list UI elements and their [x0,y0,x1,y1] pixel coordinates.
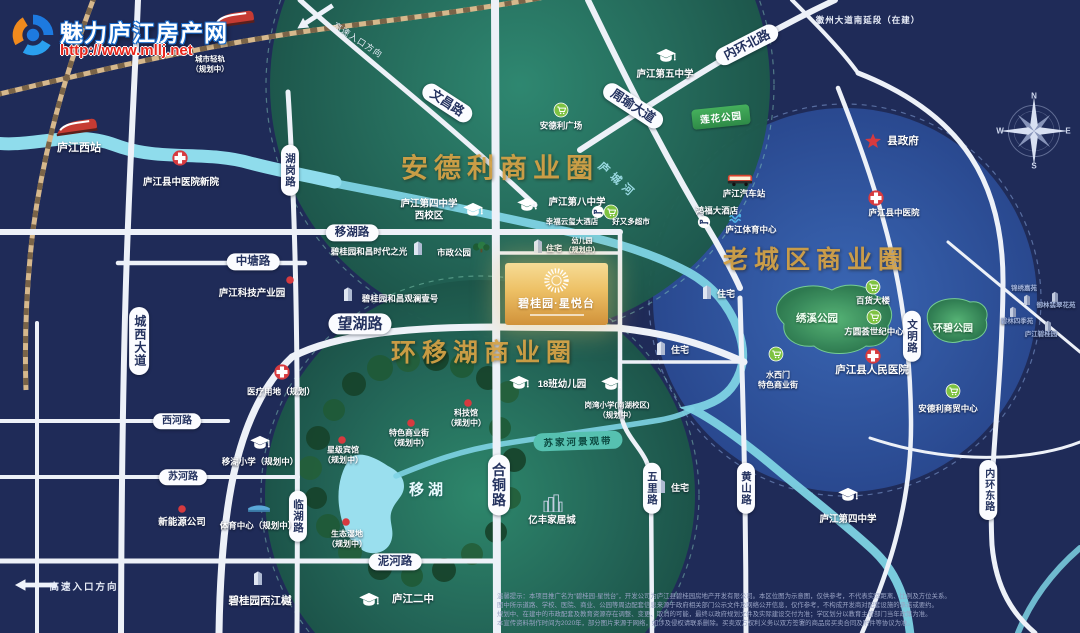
star-icon [865,133,882,150]
science-museum-planned-label: 科技馆（规划中） [446,409,486,430]
shopping-cart-icon [866,280,881,295]
graduation-cap-icon [249,435,271,451]
property-parcel[interactable]: 碧桂园·星悦台 [505,263,608,325]
location-dot-icon [286,276,295,285]
new-energy-company-label: 新能源公司 [158,517,206,529]
residence-south-label: 住宅 [671,483,689,495]
hotel-bed-icon [698,216,711,229]
compass-rose: N S W E [996,92,1072,170]
waves-icon [729,214,744,225]
community-yulin-label: 御林翡翠花苑 [1037,302,1076,310]
road-label-xihe-road: 西河路 [153,413,201,429]
huizhou-avenue-label: 徽州大道南延段（在建） [816,14,921,26]
road-label-zhongtang-road: 中塘路 [227,253,280,270]
andeli-trade-center-label: 安德利商贸中心 [918,403,978,414]
sujiahe-landscape-belt: 苏家河景观带 [533,430,623,451]
trees-icon [472,242,490,253]
municipal-park-label: 市政公园 [437,247,471,258]
building-icon [532,237,545,253]
red-cross-icon [172,150,189,167]
highway-entrance-label-bottom: 高速入口方向 [49,579,118,593]
red-cross-icon [274,364,291,381]
road-label-linhu-road: 临湖路 [289,491,307,542]
yihu-primary-school-planned-label: 移湖小学（规划中） [222,456,299,467]
road-label-hetong-road: 合铜路 [488,455,510,516]
building-icon [701,283,714,299]
bgy-hechang-shidai-zhiguang-label: 碧桂园和昌时代之光 [331,246,408,257]
community-bilin-label: 碧林四季苑 [1001,318,1034,326]
shopping-cart-icon [867,310,882,325]
shuiximen-commercial-street-label: 水西门特色商业街 [758,371,798,392]
site-url-link[interactable]: http://www.mllj.net [60,42,193,59]
buildings-outline-icon [543,494,563,512]
yihu-lake-label: 移湖 [409,479,447,500]
location-dot-icon [342,518,351,527]
building-icon [1008,305,1018,317]
community-lujiang-bgy-label: 庐江碧桂园 [1025,331,1058,339]
graduation-cap-icon [655,48,677,64]
building-icon [1022,293,1032,305]
peoples-hospital-label: 庐江县人民医院 [835,364,909,378]
lujiang-sports-center-label: 庐江体育中心 [725,224,776,235]
property-caption-line [530,314,584,316]
shopping-cart-icon [946,384,961,399]
graduation-cap-icon [837,487,859,503]
xingfu-yunxi-hotel-label: 幸福云玺大酒店 [546,217,599,227]
red-cross-icon [868,190,885,207]
zone-title-andeli-business-circle: 安德利商业圈 [401,147,599,186]
residence-north-label: 住宅 [546,244,562,254]
residence-east-label: 住宅 [671,345,689,357]
graduation-cap-icon [358,592,380,608]
graduation-cap-icon [462,202,484,218]
building-icon [1043,319,1053,331]
tcm-hospital-label: 庐江县中医院 [868,207,919,218]
building-icon [1050,290,1060,302]
disclaimer-line: 温馨提示：本项目推广名为“碧桂园·星悦台”，开发公司为庐江县碧桂园房地产开发有限… [497,592,1045,601]
building-icon [342,285,355,301]
location-dot-icon [464,399,473,408]
residence-northeast-label: 住宅 [717,289,735,301]
road-label-hugang-road: 湖岗路 [281,145,299,196]
lujiang-no2-middle-school-label: 庐江二中 [392,593,434,607]
building-icon [412,239,425,255]
red-cross-icon [865,348,882,365]
road-label-chengxi-avenue: 城西大道 [129,307,149,375]
kindergarten-18-classes-label: 18班幼儿园 [538,379,587,391]
huanbi-park-label: 环碧公园 [933,320,973,335]
road-label-nihe-road: 泥河路 [369,553,422,570]
xiuxi-park-label: 绣溪公园 [796,311,838,326]
compass-s: S [1031,162,1036,171]
map-canvas: 文昌路周瑜大道内环北路移湖路中塘路望湖路西河路苏河路泥河路城西大道湖岗路临湖路合… [0,0,1080,633]
road-label-suhe-road: 苏河路 [159,469,207,485]
disclaimer-line: 图中所示道路、学校、医院、商业、公园等周边配套信息来源于政府相关部门公示文件及网… [497,601,1045,610]
location-dot-icon [407,419,416,428]
shopping-cart-icon [554,103,569,118]
community-jinxiu-label: 锦绣嘉苑 [1011,285,1037,293]
compass-e: E [1065,127,1070,136]
road-label-wenming-road: 文明路 [903,311,921,362]
location-dot-icon [338,436,347,445]
stadium-icon [247,505,271,514]
compass-star-icon [996,92,1072,170]
gangwan-primary-school-label: 岗湾小学(南湖校区)（规划中） [585,400,650,420]
graduation-cap-icon [508,375,530,391]
road-label-neihuan-east-road: 内环东路 [979,460,997,520]
lujiang-no4-middle-school-west-label: 庐江第四中学西校区 [400,199,457,224]
zone-title-huanyihu-business-circle: 环移湖商业圈 [391,333,577,369]
zone-title-laochengqu-business-circle: 老城区商业圈 [723,240,909,276]
site-logo: 魅力庐江房产网 http://www.mllj.net [10,10,260,70]
special-commercial-street-planned-label: 特色商业街（规划中） [389,429,429,450]
tcm-hospital-new-label: 庐江县中医院新院 [143,177,219,189]
swirl-logo-icon [10,12,56,58]
tech-industry-park-label: 庐江科技产业园 [219,288,286,300]
star-hotel-planned-label: 星级宾馆（规划中） [323,446,363,467]
haoyouduo-supermarket-label: 好又多超市 [612,217,650,227]
bus-icon [727,173,753,187]
sports-center-planned-label: 体育中心（规划中） [220,520,297,531]
compass-w: W [996,127,1004,136]
medical-land-planned-label: 医疗用地（规划） [247,386,315,397]
lujiang-west-railway-station-label: 庐江西站 [57,141,101,155]
property-name: 碧桂园·星悦台 [518,295,595,311]
disclaimer-line: 本宣传资料制作时间为2020年，部分图片来源于网络，如涉及侵权请联系删除。买卖双… [497,619,1045,628]
disclaimer-text: 温馨提示：本项目推广名为“碧桂园·星悦台”，开发公司为庐江县碧桂园房地产开发有限… [497,592,1045,628]
lujiang-no5-middle-school-label: 庐江第五中学 [636,69,693,81]
graduation-cap-icon [516,197,538,213]
lujiang-bus-station-label: 庐江汽车站 [723,188,766,199]
fangyuanhui-century-center-label: 方圆荟世纪中心 [844,326,904,337]
graduation-cap-icon [600,376,622,392]
eco-wetland-planned-label: 生态湿地（规划中） [327,530,367,551]
building-icon [655,339,668,355]
sunburst-logo-icon [543,267,570,294]
bgy-hechang-guanlan-yihao-label: 碧桂园和昌观澜壹号 [362,293,439,304]
bgy-xijiangyue-label: 碧桂园西江樾 [229,595,292,609]
department-store-label: 百货大楼 [856,295,890,306]
building-icon [252,569,265,585]
county-government-label: 县政府 [887,135,919,149]
shopping-cart-icon [769,347,784,362]
road-label-wanghu-road: 望湖路 [328,313,391,334]
compass-n: N [1031,92,1037,101]
disclaimer-line: 规划中、在建中的市政配套及教育资源存在调整、变更、取消的可能，最终以政府规划文件… [497,610,1045,619]
building-icon [655,477,668,493]
location-dot-icon [178,505,187,514]
andeli-plaza-label: 安德利广场 [540,120,583,131]
yifeng-home-furnishing-city-label: 亿丰家居城 [528,515,576,527]
lujiang-no4-middle-school-label: 庐江第四中学 [819,514,876,526]
road-label-huangshan-road: 黄山路 [737,463,755,514]
road-label-yihu-road: 移湖路 [326,224,379,241]
kindergarten-planned-label: 幼儿园（规划中） [565,237,600,255]
